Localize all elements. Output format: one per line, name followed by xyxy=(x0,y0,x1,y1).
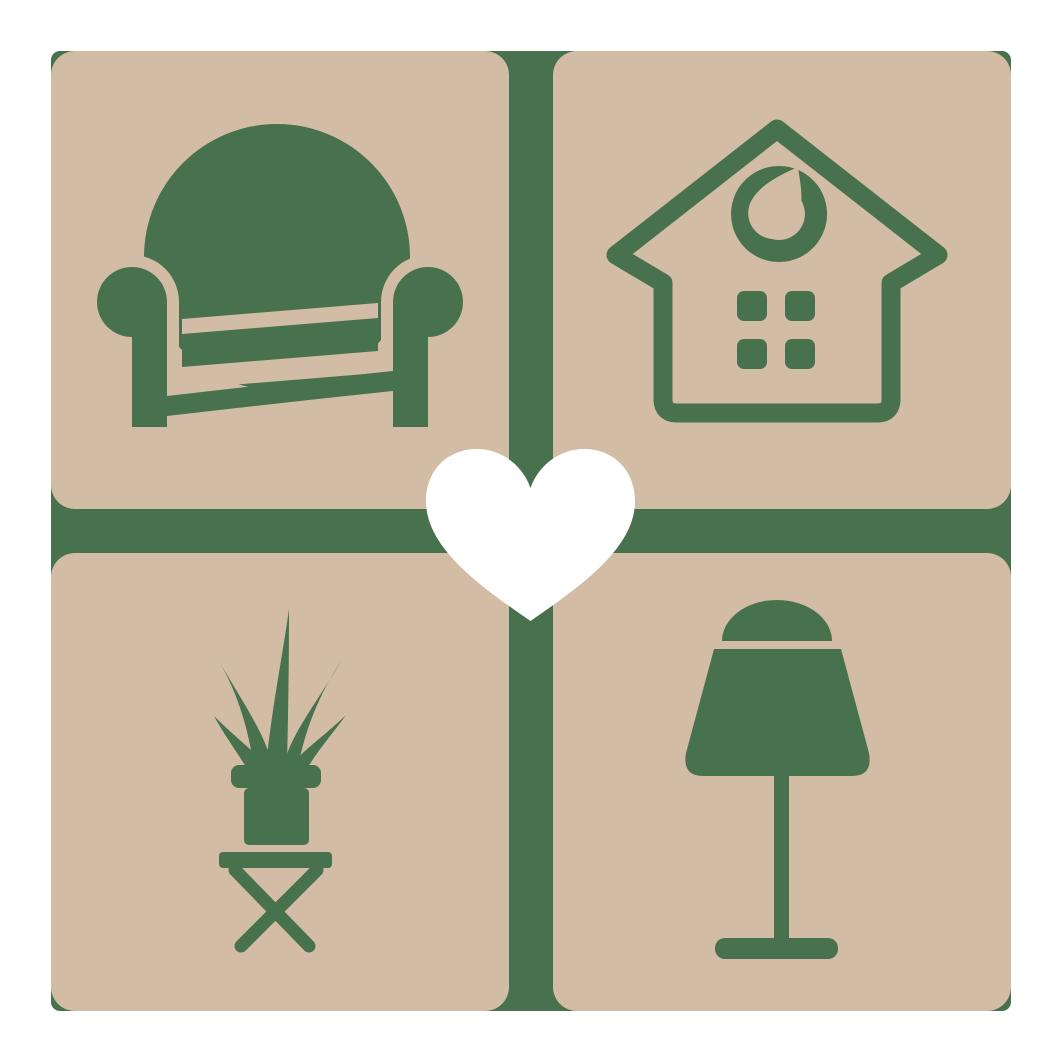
house-icon xyxy=(553,51,1011,509)
tile-house xyxy=(553,51,1011,509)
armchair-icon xyxy=(51,51,509,509)
heart-icon xyxy=(423,446,638,624)
logo-canvas xyxy=(0,0,1063,1063)
tile-armchair xyxy=(51,51,509,509)
